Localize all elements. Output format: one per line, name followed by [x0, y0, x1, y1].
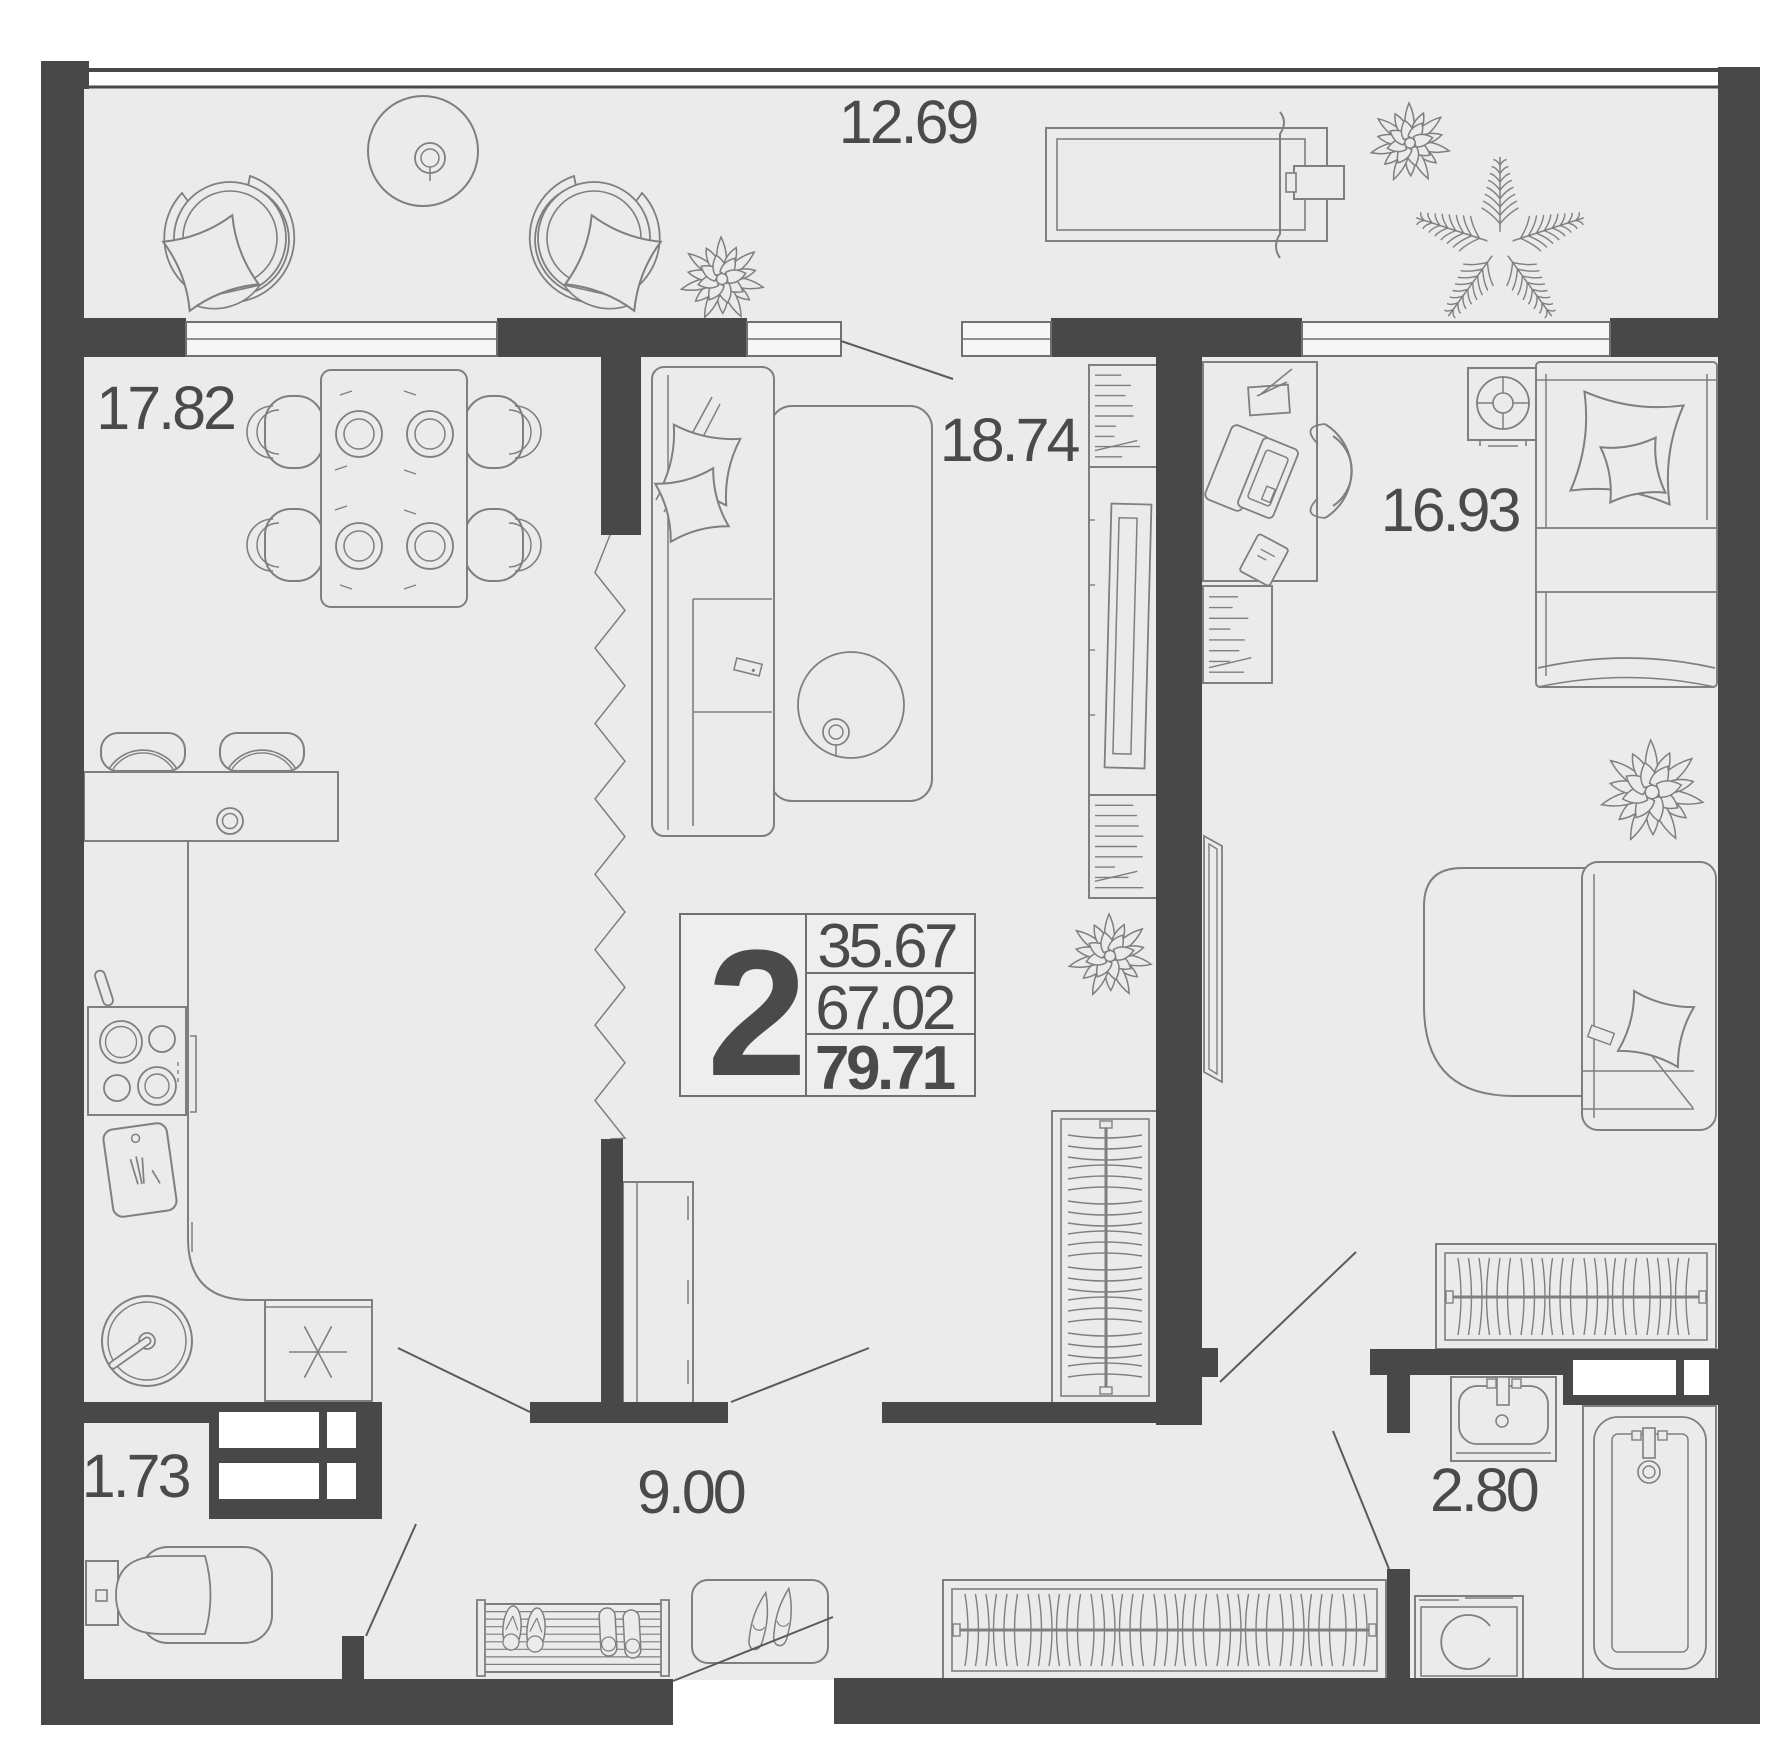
svg-text:12.69: 12.69: [839, 88, 978, 156]
svg-text:16.93: 16.93: [1381, 476, 1520, 544]
svg-text:67.02: 67.02: [815, 974, 954, 1043]
svg-text:35.67: 35.67: [817, 912, 956, 981]
svg-text:17.82: 17.82: [96, 374, 234, 442]
svg-text:1.73: 1.73: [82, 1442, 190, 1510]
svg-text:2.80: 2.80: [1430, 1456, 1538, 1524]
svg-text:2: 2: [707, 913, 807, 1114]
svg-text:18.74: 18.74: [940, 406, 1080, 474]
svg-text:9.00: 9.00: [637, 1458, 745, 1526]
svg-text:79.71: 79.71: [815, 1034, 955, 1103]
